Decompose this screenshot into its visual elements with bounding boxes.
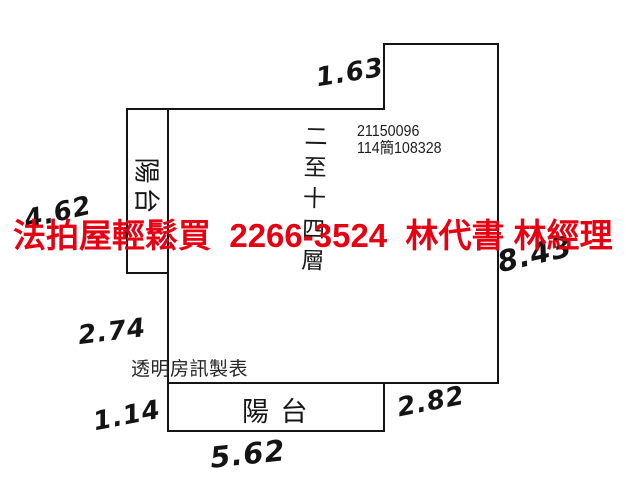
maker-credit-label: 透明房訊製表 xyxy=(131,354,248,381)
dim-top-notch: 1.63 xyxy=(314,53,386,93)
case-number-block: 21150096 114簡108328 xyxy=(357,123,442,157)
wall-top-left-edge xyxy=(126,108,385,110)
dim-left-middle: 2.74 xyxy=(76,313,147,351)
wall-top-right-edge xyxy=(383,43,499,45)
dim-bottom-right: 2.82 xyxy=(395,381,468,423)
dim-left-lower: 1.14 xyxy=(91,395,164,437)
dim-bottom: 5.62 xyxy=(208,433,287,475)
wall-side-balcony-bottom xyxy=(126,272,169,274)
bottom-balcony-label: 陽 台 xyxy=(242,390,310,429)
floor-range-vertical-note: 二至十四層 xyxy=(292,124,331,307)
case-number-line2: 114簡108328 xyxy=(357,140,442,157)
floorplan-screenshot: 陽台 21150096 114簡108328 二至十四層 透明房訊製表 陽 台 … xyxy=(0,0,640,480)
ad-banner-text: 法拍屋輕鬆買 2266-3524 林代書 林經理 xyxy=(13,219,613,253)
case-number-line1: 21150096 xyxy=(357,123,442,140)
wall-right xyxy=(497,43,499,384)
wall-bottom-balcony-bottom xyxy=(167,430,385,432)
side-balcony-label: 陽台 xyxy=(133,158,160,212)
wall-bottom-balcony-right xyxy=(383,382,385,432)
